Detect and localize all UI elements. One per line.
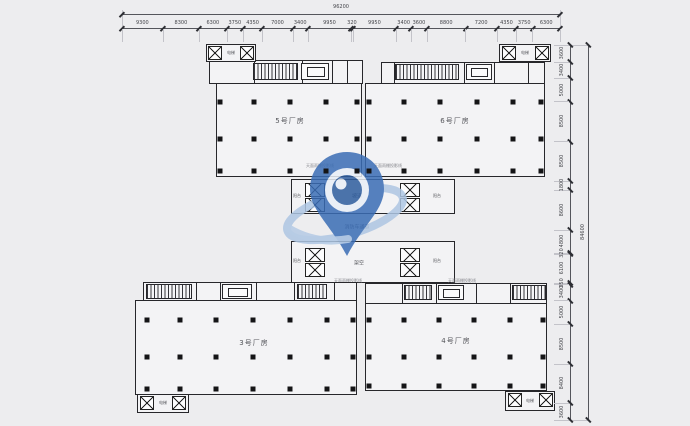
building-3-utility-room [222,284,252,299]
column [472,318,477,323]
building-5-utility-room [301,63,329,80]
dim-ext-line [411,29,412,42]
dim-label: 4350 [500,20,513,26]
dim-ext-line [532,29,533,42]
column [539,100,544,105]
dim-label: 3400 [559,64,565,77]
dim-label: 8300 [175,20,188,26]
column [541,384,546,389]
column [437,355,442,360]
column [288,169,293,174]
dim-label: 3400 [397,20,410,26]
dim-label: 3750 [518,20,531,26]
elevator-lobby-label: 电梯 [227,50,235,56]
column [402,137,407,142]
elevator-lobby-label: 电梯 [526,398,534,404]
dim-label: 6100 [559,262,565,275]
column [252,137,257,142]
building-4-label: 4号厂房 [441,336,470,346]
dim-label: 7200 [475,20,488,26]
dim-ext-line [163,29,164,42]
building-4-hall [365,303,547,391]
column [508,318,513,323]
equipment-box [443,289,460,298]
dim-label: 3400 [294,20,307,26]
column [145,355,150,360]
partition-wall [476,284,477,303]
equipment-box [228,288,248,297]
column [214,318,219,323]
dim-ext-line [227,29,228,42]
column [214,355,219,360]
column [475,137,480,142]
dim-total-label: 84600 [580,224,586,240]
column [355,137,360,142]
column [539,169,544,174]
dim-ext-line [554,230,569,231]
column [145,318,150,323]
building-6-stair [395,64,459,80]
dim-label: 5000 [559,83,565,96]
column [475,100,480,105]
column [251,318,256,323]
column [324,169,329,174]
building-5-label: 5号厂房 [275,116,304,126]
dim-total-label: 96200 [333,4,349,10]
column [367,355,372,360]
partition-wall [332,61,333,83]
dim-label: 4350 [246,20,259,26]
dim-ext-line [560,29,561,42]
dim-ext-line [427,29,428,42]
floor-plan-canvas: 电梯 5号厂房 电梯 6号厂房 阳台 阳台 坡道 消防车通道 阳台 阳台 架空 … [0,0,690,426]
partition-wall [220,283,221,300]
dim-ext-line [465,29,466,42]
column [402,100,407,105]
elevator-lobby-label: 电梯 [521,50,529,56]
column [438,137,443,142]
dim-ext-line [353,29,354,42]
column [288,318,293,323]
dim-label: 8500 [559,155,565,168]
column [511,169,516,174]
balcony-label: 阳台 [433,193,441,199]
dim-label: 6300 [540,20,553,26]
dim-ext-line [554,300,569,301]
watermark-logo [282,146,412,274]
column [508,355,513,360]
column [178,387,183,392]
column [288,387,293,392]
dim-label: 3600 [559,405,565,418]
building-6-utility-room [466,64,492,80]
column [214,387,219,392]
dim-label: 1800 [559,179,565,192]
dim-label: 8500 [559,337,565,350]
partition-wall [436,284,437,303]
column [288,100,293,105]
dim-ext-line [293,29,294,42]
column [325,318,330,323]
column [367,137,372,142]
partition-wall [510,284,511,303]
dim-ext-line [308,29,309,42]
building-3-stair [297,284,327,299]
partition-wall [294,283,295,300]
equipment-box [307,67,325,77]
dim-label: 8800 [440,20,453,26]
dim-label: 9950 [368,20,381,26]
column [252,169,257,174]
dim-ext-line [554,403,569,404]
building-4-stair [404,285,432,300]
partition-wall [334,283,335,300]
dim-label: 320 [559,248,565,258]
column [251,355,256,360]
column [178,318,183,323]
building-6-label: 6号厂房 [440,116,469,126]
elevator-shaft [140,396,154,410]
dim-label: 8600 [559,203,565,216]
dim-ext-line [554,141,569,142]
elevator-shaft [539,393,553,407]
column [288,355,293,360]
elevator-shaft [508,393,522,407]
column [218,137,223,142]
column [475,169,480,174]
column [351,355,356,360]
column [437,384,442,389]
partition-wall [464,63,465,83]
column [355,169,360,174]
column [178,355,183,360]
column [437,318,442,323]
elevator-shaft [208,46,222,60]
column [367,169,372,174]
dim-label: 320 [347,20,357,26]
dim-total-line [122,14,560,15]
dim-ext-line [554,324,569,325]
dim-label: 8400 [559,377,565,390]
column [511,137,516,142]
column [288,137,293,142]
building-3-stair [146,284,192,299]
dim-label: 4800 [559,235,565,248]
dim-ext-line [243,29,244,42]
elevator-shaft [535,46,549,60]
column [145,387,150,392]
column [324,100,329,105]
dim-ext-line [516,29,517,42]
dim-label: 6300 [206,20,219,26]
building-4-stair [512,285,546,300]
column [402,169,407,174]
column [218,169,223,174]
column [355,100,360,105]
column [472,384,477,389]
partition-wall [402,284,403,303]
dim-label: 9300 [136,20,149,26]
partition-wall [196,283,197,300]
column [367,100,372,105]
column [325,355,330,360]
column [218,100,223,105]
dim-ext-line [199,29,200,42]
column [367,318,372,323]
dim-ext-line [122,29,123,42]
elevator-shaft [502,46,516,60]
column [402,318,407,323]
dim-total-line [588,45,589,420]
column [438,169,443,174]
building-4-utility-room [438,285,464,300]
dim-label: 9950 [323,20,336,26]
dim-label: 3750 [228,20,241,26]
column [351,318,356,323]
dim-label: 8500 [559,115,565,128]
building-5-stair [253,63,298,80]
dim-ext-line [554,420,569,421]
dim-ext-line [554,364,569,365]
elevator-lobby-label: 电梯 [159,400,167,406]
balcony-label: 阳台 [433,258,441,264]
partition-wall [347,61,348,83]
column [541,355,546,360]
column [367,384,372,389]
column [539,137,544,142]
dim-label: 3600 [559,47,565,60]
column [324,137,329,142]
column [541,318,546,323]
equipment-box [471,68,488,77]
dim-ext-line [554,78,569,79]
dim-ext-line [554,101,569,102]
column [252,100,257,105]
column [351,387,356,392]
column [325,387,330,392]
dim-label: 3600 [413,20,426,26]
dim-label: 5000 [559,306,565,319]
dim-label: 7000 [271,20,284,26]
dim-ext-line [262,29,263,42]
elevator-shaft [172,396,186,410]
elevator-shaft [240,46,254,60]
column [438,100,443,105]
building-3-label: 3号厂房 [239,338,268,348]
partition-wall [528,63,529,83]
column [508,384,513,389]
dim-ext-line [396,29,397,42]
partition-wall [494,63,495,83]
column [251,387,256,392]
column [472,355,477,360]
column [511,100,516,105]
dim-label: 3400 [559,286,565,299]
column [402,384,407,389]
dim-ext-line [497,29,498,42]
column [402,355,407,360]
partition-wall [256,283,257,300]
